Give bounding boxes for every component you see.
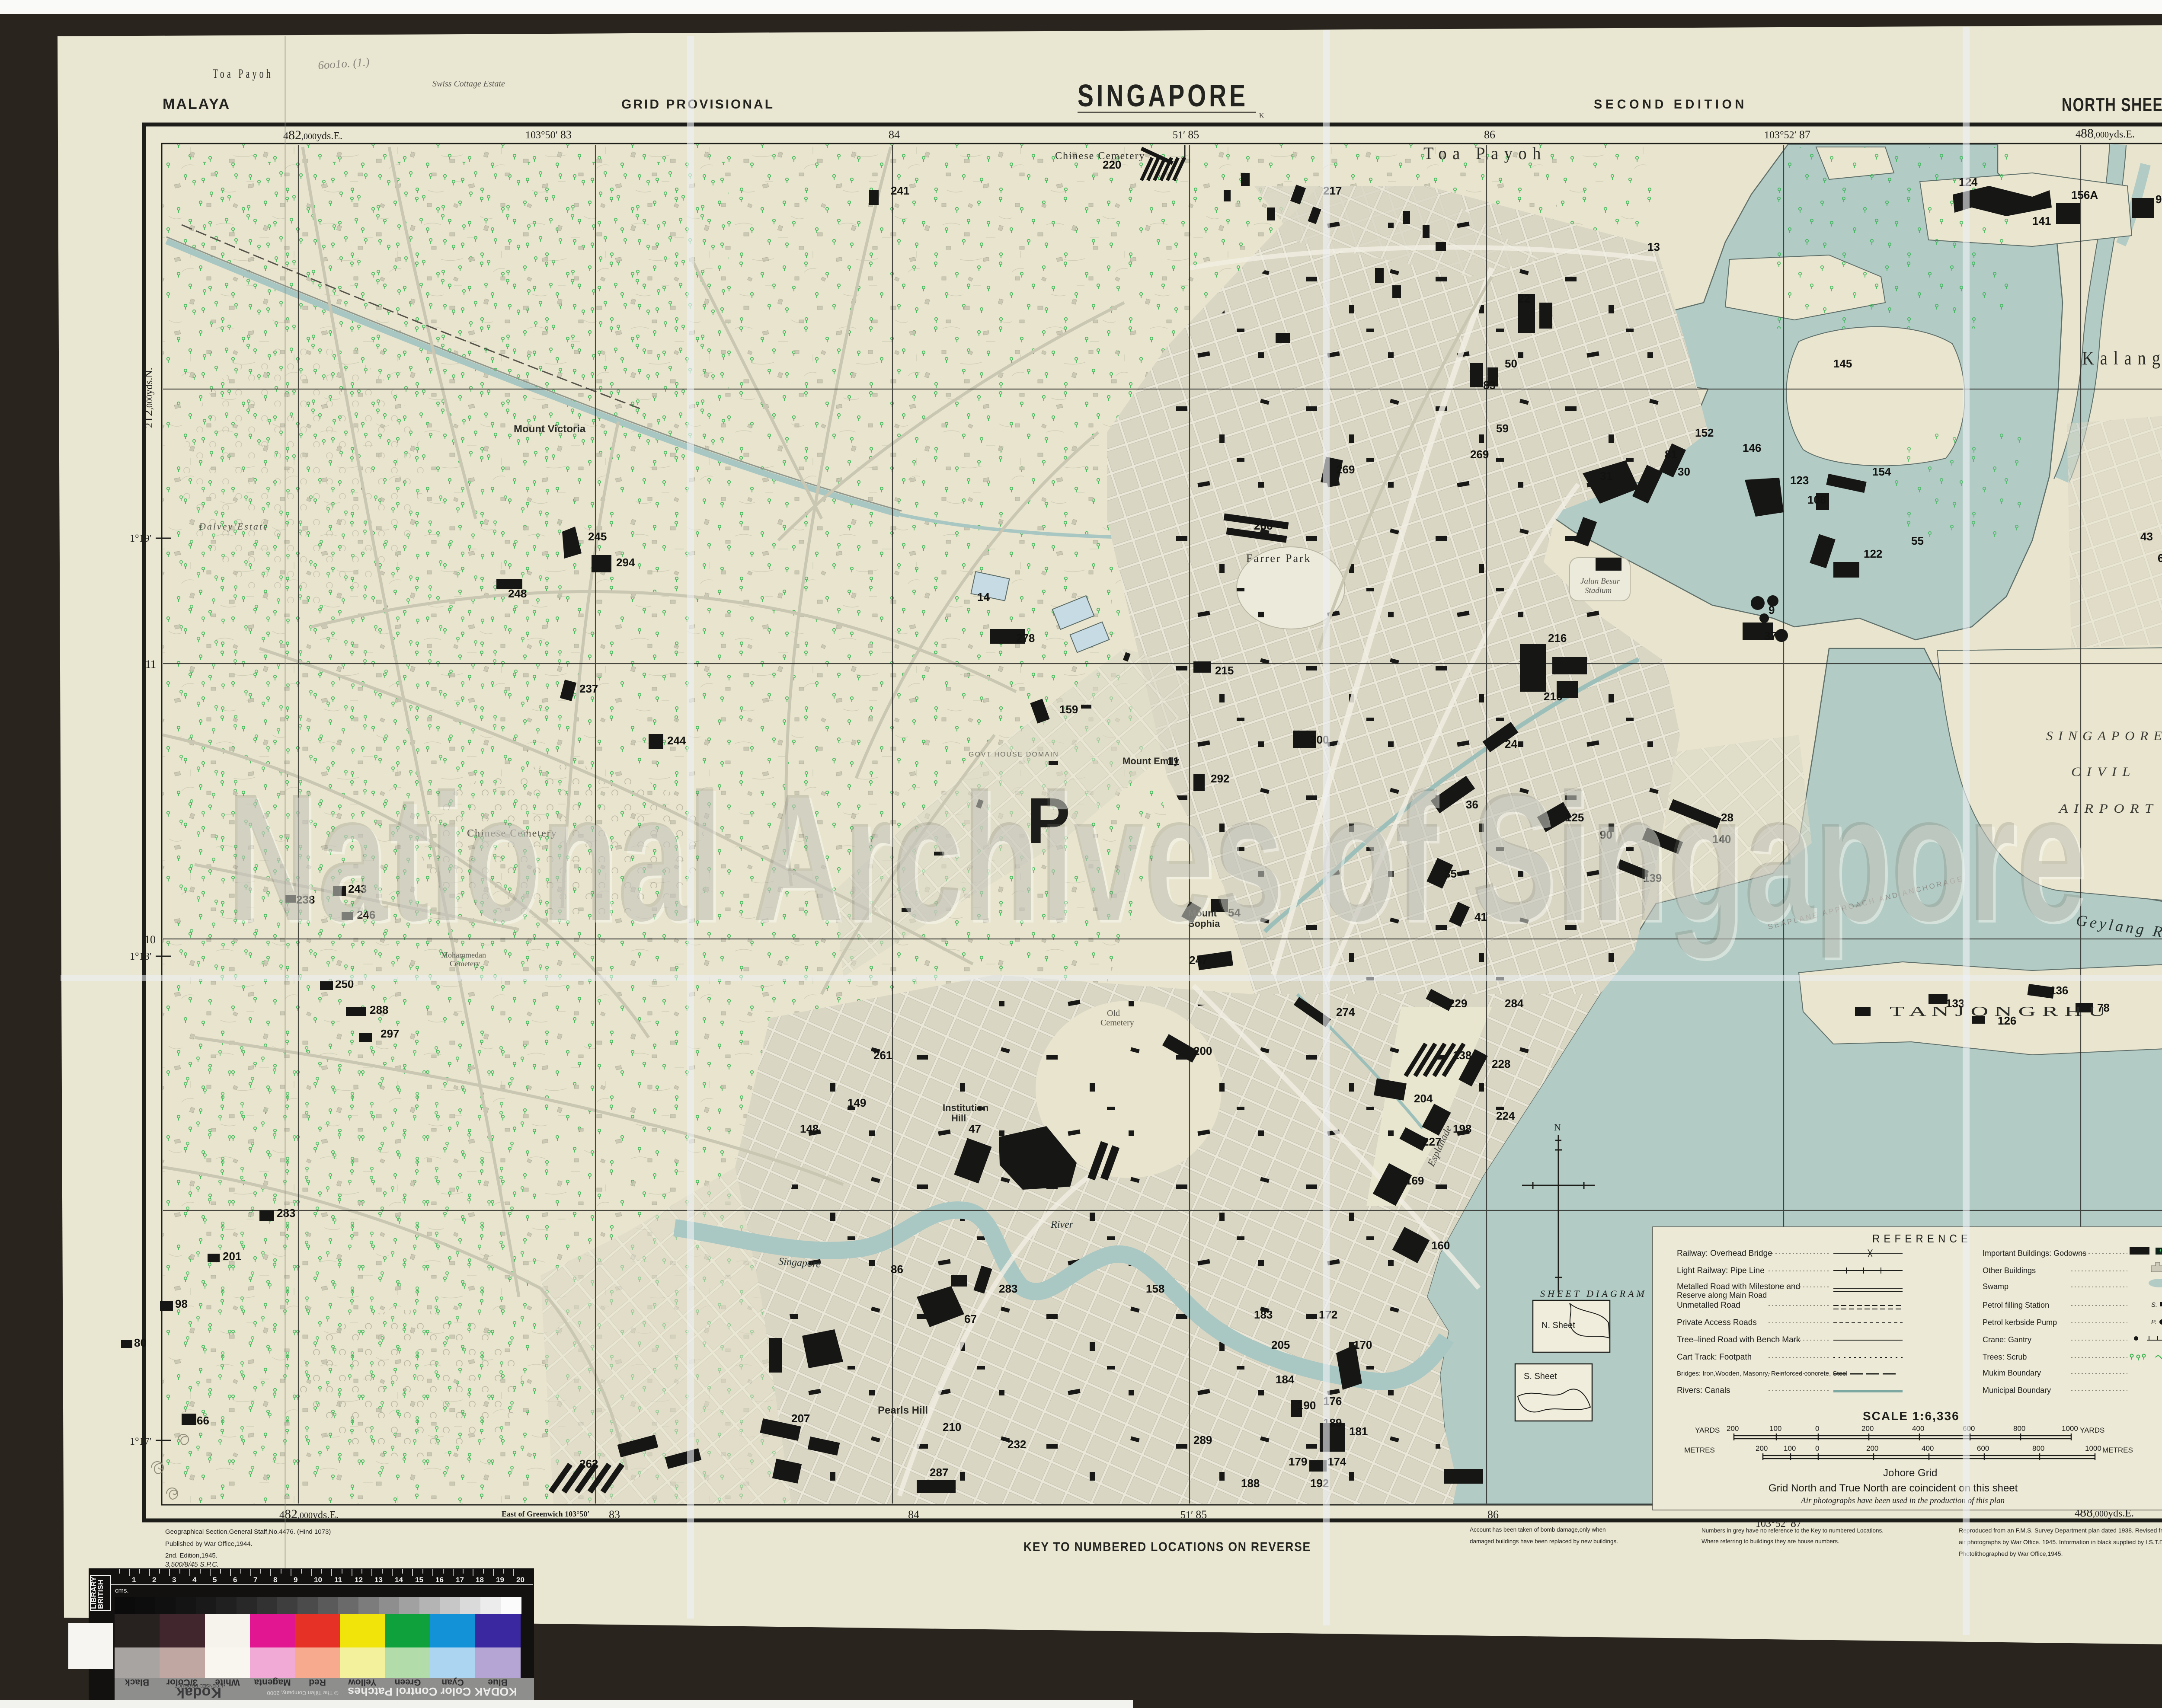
svg-text:Unmetalled Road: Unmetalled Road bbox=[1677, 1301, 1740, 1310]
svg-text:152: 152 bbox=[1695, 426, 1714, 439]
svg-text:3: 3 bbox=[172, 1576, 176, 1584]
svg-text:Trees: Scrub: Trees: Scrub bbox=[1983, 1353, 2027, 1361]
svg-text:Air photographs have been used: Air photographs have been used in the pr… bbox=[1800, 1496, 2005, 1505]
svg-text:108: 108 bbox=[1807, 493, 1826, 506]
svg-text:19: 19 bbox=[496, 1576, 504, 1584]
svg-text:269: 269 bbox=[1470, 448, 1489, 461]
svg-text:30: 30 bbox=[1678, 465, 1690, 478]
svg-text:262: 262 bbox=[579, 1457, 598, 1470]
svg-text:Mount Victoria: Mount Victoria bbox=[514, 423, 586, 435]
svg-text:SINGAPORE: SINGAPORE bbox=[1078, 79, 1248, 113]
svg-text:294: 294 bbox=[616, 556, 635, 569]
svg-text:400: 400 bbox=[1912, 1424, 1924, 1433]
svg-text:κ: κ bbox=[1259, 109, 1264, 120]
svg-text:Petrol kerbside Pump: Petrol kerbside Pump bbox=[1983, 1318, 2057, 1327]
svg-text:22: 22 bbox=[1518, 292, 1530, 305]
svg-text:103°52′ 87: 103°52′ 87 bbox=[1764, 128, 1810, 141]
svg-text:Kalang: Kalang bbox=[2082, 348, 2162, 369]
svg-text:1°19′: 1°19′ bbox=[130, 533, 152, 544]
svg-text:National Archives of Singapore: National Archives of Singapore bbox=[227, 756, 2086, 960]
svg-text:Black: Black bbox=[125, 1677, 149, 1687]
svg-text:204: 204 bbox=[1414, 1092, 1433, 1105]
svg-text:51′ 85: 51′ 85 bbox=[1173, 128, 1199, 141]
svg-text:600: 600 bbox=[1977, 1444, 1989, 1453]
svg-text:15: 15 bbox=[2159, 1248, 2162, 1255]
svg-text:274: 274 bbox=[1336, 1006, 1355, 1018]
svg-text:20: 20 bbox=[516, 1576, 525, 1584]
svg-text:MALAYA: MALAYA bbox=[163, 96, 230, 112]
svg-text:207: 207 bbox=[791, 1412, 810, 1425]
svg-text:289: 289 bbox=[1193, 1433, 1212, 1446]
svg-text:Swamp: Swamp bbox=[1983, 1282, 2008, 1291]
svg-text:237: 237 bbox=[579, 682, 598, 695]
svg-text:145: 145 bbox=[1833, 357, 1852, 370]
svg-text:Pearls Hill: Pearls Hill bbox=[878, 1405, 928, 1416]
svg-text:122: 122 bbox=[1864, 547, 1882, 560]
svg-text:83: 83 bbox=[1483, 379, 1496, 392]
svg-text:190: 190 bbox=[1297, 1399, 1316, 1412]
svg-text:86: 86 bbox=[1484, 128, 1495, 141]
svg-text:2: 2 bbox=[152, 1576, 156, 1584]
svg-text:81: 81 bbox=[1665, 448, 1677, 461]
svg-text:266: 266 bbox=[1254, 519, 1273, 532]
svg-text:1°18′: 1°18′ bbox=[130, 951, 152, 962]
svg-text:13: 13 bbox=[374, 1576, 383, 1584]
svg-text:Light Railway: Pipe Line: Light Railway: Pipe Line bbox=[1677, 1266, 1765, 1275]
svg-text:East of Greenwich 103°50′: East of Greenwich 103°50′ bbox=[502, 1510, 589, 1518]
svg-text:6: 6 bbox=[233, 1576, 237, 1584]
svg-text:283: 283 bbox=[999, 1282, 1017, 1295]
svg-text:Toa Payoh: Toa Payoh bbox=[1423, 144, 1547, 163]
svg-text:245: 245 bbox=[588, 530, 607, 543]
svg-text:179: 179 bbox=[1289, 1455, 1307, 1468]
svg-text:1: 1 bbox=[132, 1576, 136, 1584]
svg-text:LICENSED PRODUCT: LICENSED PRODUCT bbox=[174, 1683, 223, 1688]
svg-text:138: 138 bbox=[1453, 1049, 1471, 1062]
svg-text:1000: 1000 bbox=[2062, 1424, 2078, 1433]
svg-text:Other Buildings: Other Buildings bbox=[1983, 1266, 2036, 1275]
svg-text:Johore Grid: Johore Grid bbox=[1883, 1467, 1937, 1479]
svg-text:2nd. Edition,1945.: 2nd. Edition,1945. bbox=[165, 1552, 217, 1559]
svg-text:200: 200 bbox=[1193, 1044, 1212, 1057]
svg-text:Published by War Office,1944.: Published by War Office,1944. bbox=[165, 1540, 253, 1548]
svg-text:283: 283 bbox=[277, 1207, 295, 1220]
svg-text:98: 98 bbox=[175, 1297, 188, 1310]
svg-text:10: 10 bbox=[144, 933, 156, 946]
svg-text:3,500/8/45 S.P.C.: 3,500/8/45 S.P.C. bbox=[165, 1561, 219, 1568]
svg-text:51′ 85: 51′ 85 bbox=[1180, 1508, 1207, 1521]
svg-text:Jalan Besar: Jalan Besar bbox=[1580, 577, 1620, 586]
svg-text:7: 7 bbox=[253, 1576, 257, 1584]
svg-text:P.: P. bbox=[2151, 1319, 2156, 1326]
svg-text:800: 800 bbox=[2032, 1444, 2044, 1453]
svg-text:224: 224 bbox=[1496, 1109, 1515, 1122]
svg-text:SINGAPORE: SINGAPORE bbox=[2046, 729, 2162, 743]
svg-text:Farrer Park: Farrer Park bbox=[1246, 552, 1311, 565]
svg-text:Reproduced from an F.M.S. Surv: Reproduced from an F.M.S. Survey Departm… bbox=[1959, 1527, 2162, 1534]
svg-text:Tree–lined Road with Bench Mar: Tree–lined Road with Bench Mark bbox=[1677, 1335, 1801, 1344]
svg-text:KODAK Color Control Patches: KODAK Color Control Patches bbox=[348, 1685, 517, 1698]
svg-text:0: 0 bbox=[1815, 1444, 1819, 1453]
svg-text:136: 136 bbox=[2050, 984, 2068, 997]
svg-text:Municipal Boundary: Municipal Boundary bbox=[1983, 1386, 2051, 1395]
svg-text:400: 400 bbox=[1922, 1444, 1934, 1453]
svg-text:47: 47 bbox=[969, 1122, 981, 1135]
svg-text:170: 170 bbox=[1353, 1338, 1372, 1351]
svg-text:9: 9 bbox=[1769, 603, 1775, 616]
svg-text:4: 4 bbox=[192, 1576, 197, 1584]
svg-text:air photographs by War Office.: air photographs by War Office. 1945. Inf… bbox=[1959, 1539, 2162, 1545]
svg-text:59: 59 bbox=[1496, 422, 1509, 435]
svg-text:15: 15 bbox=[415, 1576, 423, 1584]
svg-text:37: 37 bbox=[1764, 629, 1777, 642]
svg-text:N: N bbox=[1554, 1122, 1561, 1133]
svg-text:16: 16 bbox=[435, 1576, 444, 1584]
svg-text:18: 18 bbox=[476, 1576, 484, 1584]
svg-text:8: 8 bbox=[273, 1576, 277, 1584]
svg-text:43: 43 bbox=[2140, 530, 2153, 543]
svg-text:SHEET DIAGRAM: SHEET DIAGRAM bbox=[1540, 1288, 1647, 1299]
svg-text:13: 13 bbox=[1647, 240, 1660, 253]
svg-text:31: 31 bbox=[1600, 469, 1612, 482]
svg-text:GRID PROVISIONAL: GRID PROVISIONAL bbox=[621, 97, 774, 112]
svg-text:50: 50 bbox=[1505, 357, 1517, 370]
svg-text:287: 287 bbox=[930, 1466, 948, 1479]
svg-text:84: 84 bbox=[889, 128, 900, 141]
svg-text:210: 210 bbox=[943, 1421, 961, 1433]
svg-text:198: 198 bbox=[1453, 1122, 1471, 1135]
svg-text:297: 297 bbox=[381, 1027, 399, 1040]
svg-text:© The Tiffen Company, 2000: © The Tiffen Company, 2000 bbox=[267, 1690, 339, 1696]
svg-text:86: 86 bbox=[1487, 1508, 1499, 1521]
svg-text:232: 232 bbox=[1007, 1438, 1026, 1451]
svg-text:288: 288 bbox=[370, 1003, 388, 1016]
svg-text:159: 159 bbox=[1059, 703, 1078, 716]
svg-text:1°17′: 1°17′ bbox=[130, 1436, 152, 1447]
svg-text:Photolithographed by War Offic: Photolithographed by War Office,1945. bbox=[1959, 1550, 2063, 1557]
svg-text:278: 278 bbox=[1016, 632, 1035, 645]
svg-text:86: 86 bbox=[891, 1263, 903, 1276]
svg-text:METRES: METRES bbox=[2102, 1446, 2133, 1454]
svg-text:148: 148 bbox=[800, 1122, 819, 1135]
svg-text:156A: 156A bbox=[2071, 188, 2098, 201]
svg-text:800: 800 bbox=[2013, 1424, 2025, 1433]
svg-text:229: 229 bbox=[1449, 997, 1467, 1010]
svg-text:123: 123 bbox=[1790, 474, 1809, 487]
svg-text:N. Sheet: N. Sheet bbox=[1542, 1321, 1575, 1330]
svg-text:1000: 1000 bbox=[2085, 1444, 2101, 1453]
svg-text:Bridges: Iron,Wooden, Masonry,: Bridges: Iron,Wooden, Masonry, Reinforce… bbox=[1677, 1370, 1848, 1377]
svg-text:67: 67 bbox=[964, 1312, 977, 1325]
svg-text:S. Sheet: S. Sheet bbox=[1524, 1372, 1557, 1381]
svg-text:146: 146 bbox=[1743, 441, 1761, 454]
svg-text:Account has been taken of bomb: Account has been taken of bomb damage,on… bbox=[1470, 1526, 1606, 1533]
svg-text:Cart Track: Footpath: Cart Track: Footpath bbox=[1677, 1353, 1752, 1362]
svg-text:14: 14 bbox=[395, 1576, 403, 1584]
svg-text:KEY TO NUMBERED LOCATIONS ON R: KEY TO NUMBERED LOCATIONS ON REVERSE bbox=[1023, 1540, 1311, 1554]
svg-text:261: 261 bbox=[873, 1049, 892, 1062]
svg-text:Metalled Road with Milestone a: Metalled Road with Milestone and bbox=[1677, 1282, 1800, 1291]
svg-text:24: 24 bbox=[1505, 737, 1517, 750]
svg-text:200: 200 bbox=[1861, 1424, 1874, 1433]
svg-text:141: 141 bbox=[2032, 214, 2051, 227]
svg-text:0: 0 bbox=[1815, 1424, 1819, 1433]
svg-text:14: 14 bbox=[977, 591, 990, 603]
svg-text:200: 200 bbox=[1866, 1444, 1878, 1453]
svg-text:6: 6 bbox=[2158, 552, 2162, 565]
svg-text:160: 160 bbox=[1431, 1239, 1450, 1252]
svg-text:169: 169 bbox=[1405, 1174, 1424, 1187]
svg-text:216: 216 bbox=[1548, 632, 1567, 645]
svg-text:Geographical Section,General S: Geographical Section,General Staff,No.44… bbox=[165, 1528, 331, 1536]
svg-text:181: 181 bbox=[1349, 1425, 1368, 1438]
svg-text:12: 12 bbox=[355, 1576, 363, 1584]
svg-text:183: 183 bbox=[1254, 1308, 1273, 1321]
svg-text:T A N J O N G R H U: T A N J O N G R H U bbox=[1890, 1003, 2106, 1019]
svg-text:158: 158 bbox=[1146, 1282, 1164, 1295]
svg-text:200: 200 bbox=[1756, 1444, 1768, 1453]
svg-text:80: 80 bbox=[134, 1336, 147, 1349]
svg-text:174: 174 bbox=[1327, 1455, 1346, 1468]
svg-text:River: River bbox=[1050, 1219, 1074, 1230]
svg-text:103°50′ 83: 103°50′ 83 bbox=[525, 128, 572, 141]
svg-text:269: 269 bbox=[1336, 463, 1355, 476]
svg-text:100: 100 bbox=[1784, 1444, 1796, 1453]
svg-text:SECOND EDITION: SECOND EDITION bbox=[1594, 97, 1747, 112]
svg-text:11: 11 bbox=[145, 658, 156, 670]
svg-text:Stadium: Stadium bbox=[1585, 586, 1612, 595]
svg-text:228: 228 bbox=[1492, 1057, 1510, 1070]
svg-text:84: 84 bbox=[908, 1508, 919, 1521]
svg-text:YARDS: YARDS bbox=[1695, 1426, 1720, 1434]
svg-text:149: 149 bbox=[848, 1096, 866, 1109]
svg-text:5: 5 bbox=[213, 1576, 217, 1584]
svg-text:244: 244 bbox=[667, 734, 686, 747]
svg-text:Crane: Gantry: Crane: Gantry bbox=[1983, 1335, 2031, 1344]
svg-text:Red: Red bbox=[309, 1677, 326, 1687]
svg-text:248: 248 bbox=[508, 587, 527, 600]
svg-text:Petrol filling Station: Petrol filling Station bbox=[1983, 1301, 2049, 1309]
svg-text:cms.: cms. bbox=[115, 1587, 129, 1594]
svg-text:Private Access Roads: Private Access Roads bbox=[1677, 1318, 1757, 1327]
svg-text:SCALE 1:6,336: SCALE 1:6,336 bbox=[1863, 1409, 1960, 1423]
svg-text:Chinese Cemetery: Chinese Cemetery bbox=[1055, 150, 1145, 162]
svg-text:216: 216 bbox=[1544, 690, 1562, 703]
svg-text:83: 83 bbox=[609, 1508, 620, 1521]
svg-text:284: 284 bbox=[1505, 997, 1524, 1010]
svg-text:damaged buildings have been re: damaged buildings have been replaced by … bbox=[1470, 1538, 1618, 1545]
svg-text:Reserve along Main Road: Reserve along Main Road bbox=[1677, 1291, 1767, 1299]
svg-text:Rivers: Canals: Rivers: Canals bbox=[1677, 1386, 1730, 1395]
svg-text:REFERENCE: REFERENCE bbox=[1872, 1232, 1972, 1245]
svg-text:200: 200 bbox=[1727, 1424, 1739, 1433]
svg-text:Dalvey Estate: Dalvey Estate bbox=[198, 521, 269, 532]
svg-text:184: 184 bbox=[1276, 1373, 1295, 1386]
svg-text:55: 55 bbox=[1911, 534, 1924, 547]
svg-text:YARDS: YARDS bbox=[2080, 1426, 2104, 1434]
svg-text:Where referring to buildings t: Where referring to buildings they are ho… bbox=[1701, 1538, 1839, 1545]
svg-text:215: 215 bbox=[1215, 664, 1234, 677]
svg-text:93: 93 bbox=[2156, 193, 2162, 206]
svg-text:Important Buildings: Godowns: Important Buildings: Godowns bbox=[1983, 1249, 2086, 1258]
svg-text:201: 201 bbox=[223, 1250, 241, 1263]
svg-text:10: 10 bbox=[314, 1576, 322, 1584]
svg-text:Swiss Cottage Estate: Swiss Cottage Estate bbox=[432, 79, 505, 89]
svg-text:17: 17 bbox=[456, 1576, 464, 1584]
svg-text:66: 66 bbox=[197, 1414, 209, 1427]
svg-text:Magenta: Magenta bbox=[254, 1677, 291, 1687]
svg-text:100: 100 bbox=[1769, 1424, 1781, 1433]
svg-text:205: 205 bbox=[1271, 1338, 1290, 1351]
svg-text:241: 241 bbox=[891, 184, 909, 197]
svg-text:Toa Payoh: Toa Payoh bbox=[213, 67, 273, 81]
svg-text:Railway: Overhead Bridge: Railway: Overhead Bridge bbox=[1677, 1249, 1772, 1258]
svg-text:METRES: METRES bbox=[1684, 1446, 1715, 1454]
svg-text:188: 188 bbox=[1241, 1477, 1260, 1490]
svg-text:NORTH SHEET(1): NORTH SHEET(1) bbox=[2062, 94, 2162, 115]
svg-text:154: 154 bbox=[1872, 465, 1891, 478]
svg-text:9: 9 bbox=[294, 1576, 297, 1584]
svg-text:Grid North and True North are: Grid North and True North are coincident… bbox=[1769, 1482, 2018, 1494]
svg-text:Mukim Boundary: Mukim Boundary bbox=[1983, 1369, 2041, 1377]
svg-text:LIBRARY: LIBRARY bbox=[90, 1576, 98, 1609]
svg-text:Numbers in grey have no refere: Numbers in grey have no reference to the… bbox=[1701, 1527, 1884, 1534]
svg-text:S.: S. bbox=[2151, 1301, 2157, 1309]
svg-text:11: 11 bbox=[334, 1576, 342, 1584]
